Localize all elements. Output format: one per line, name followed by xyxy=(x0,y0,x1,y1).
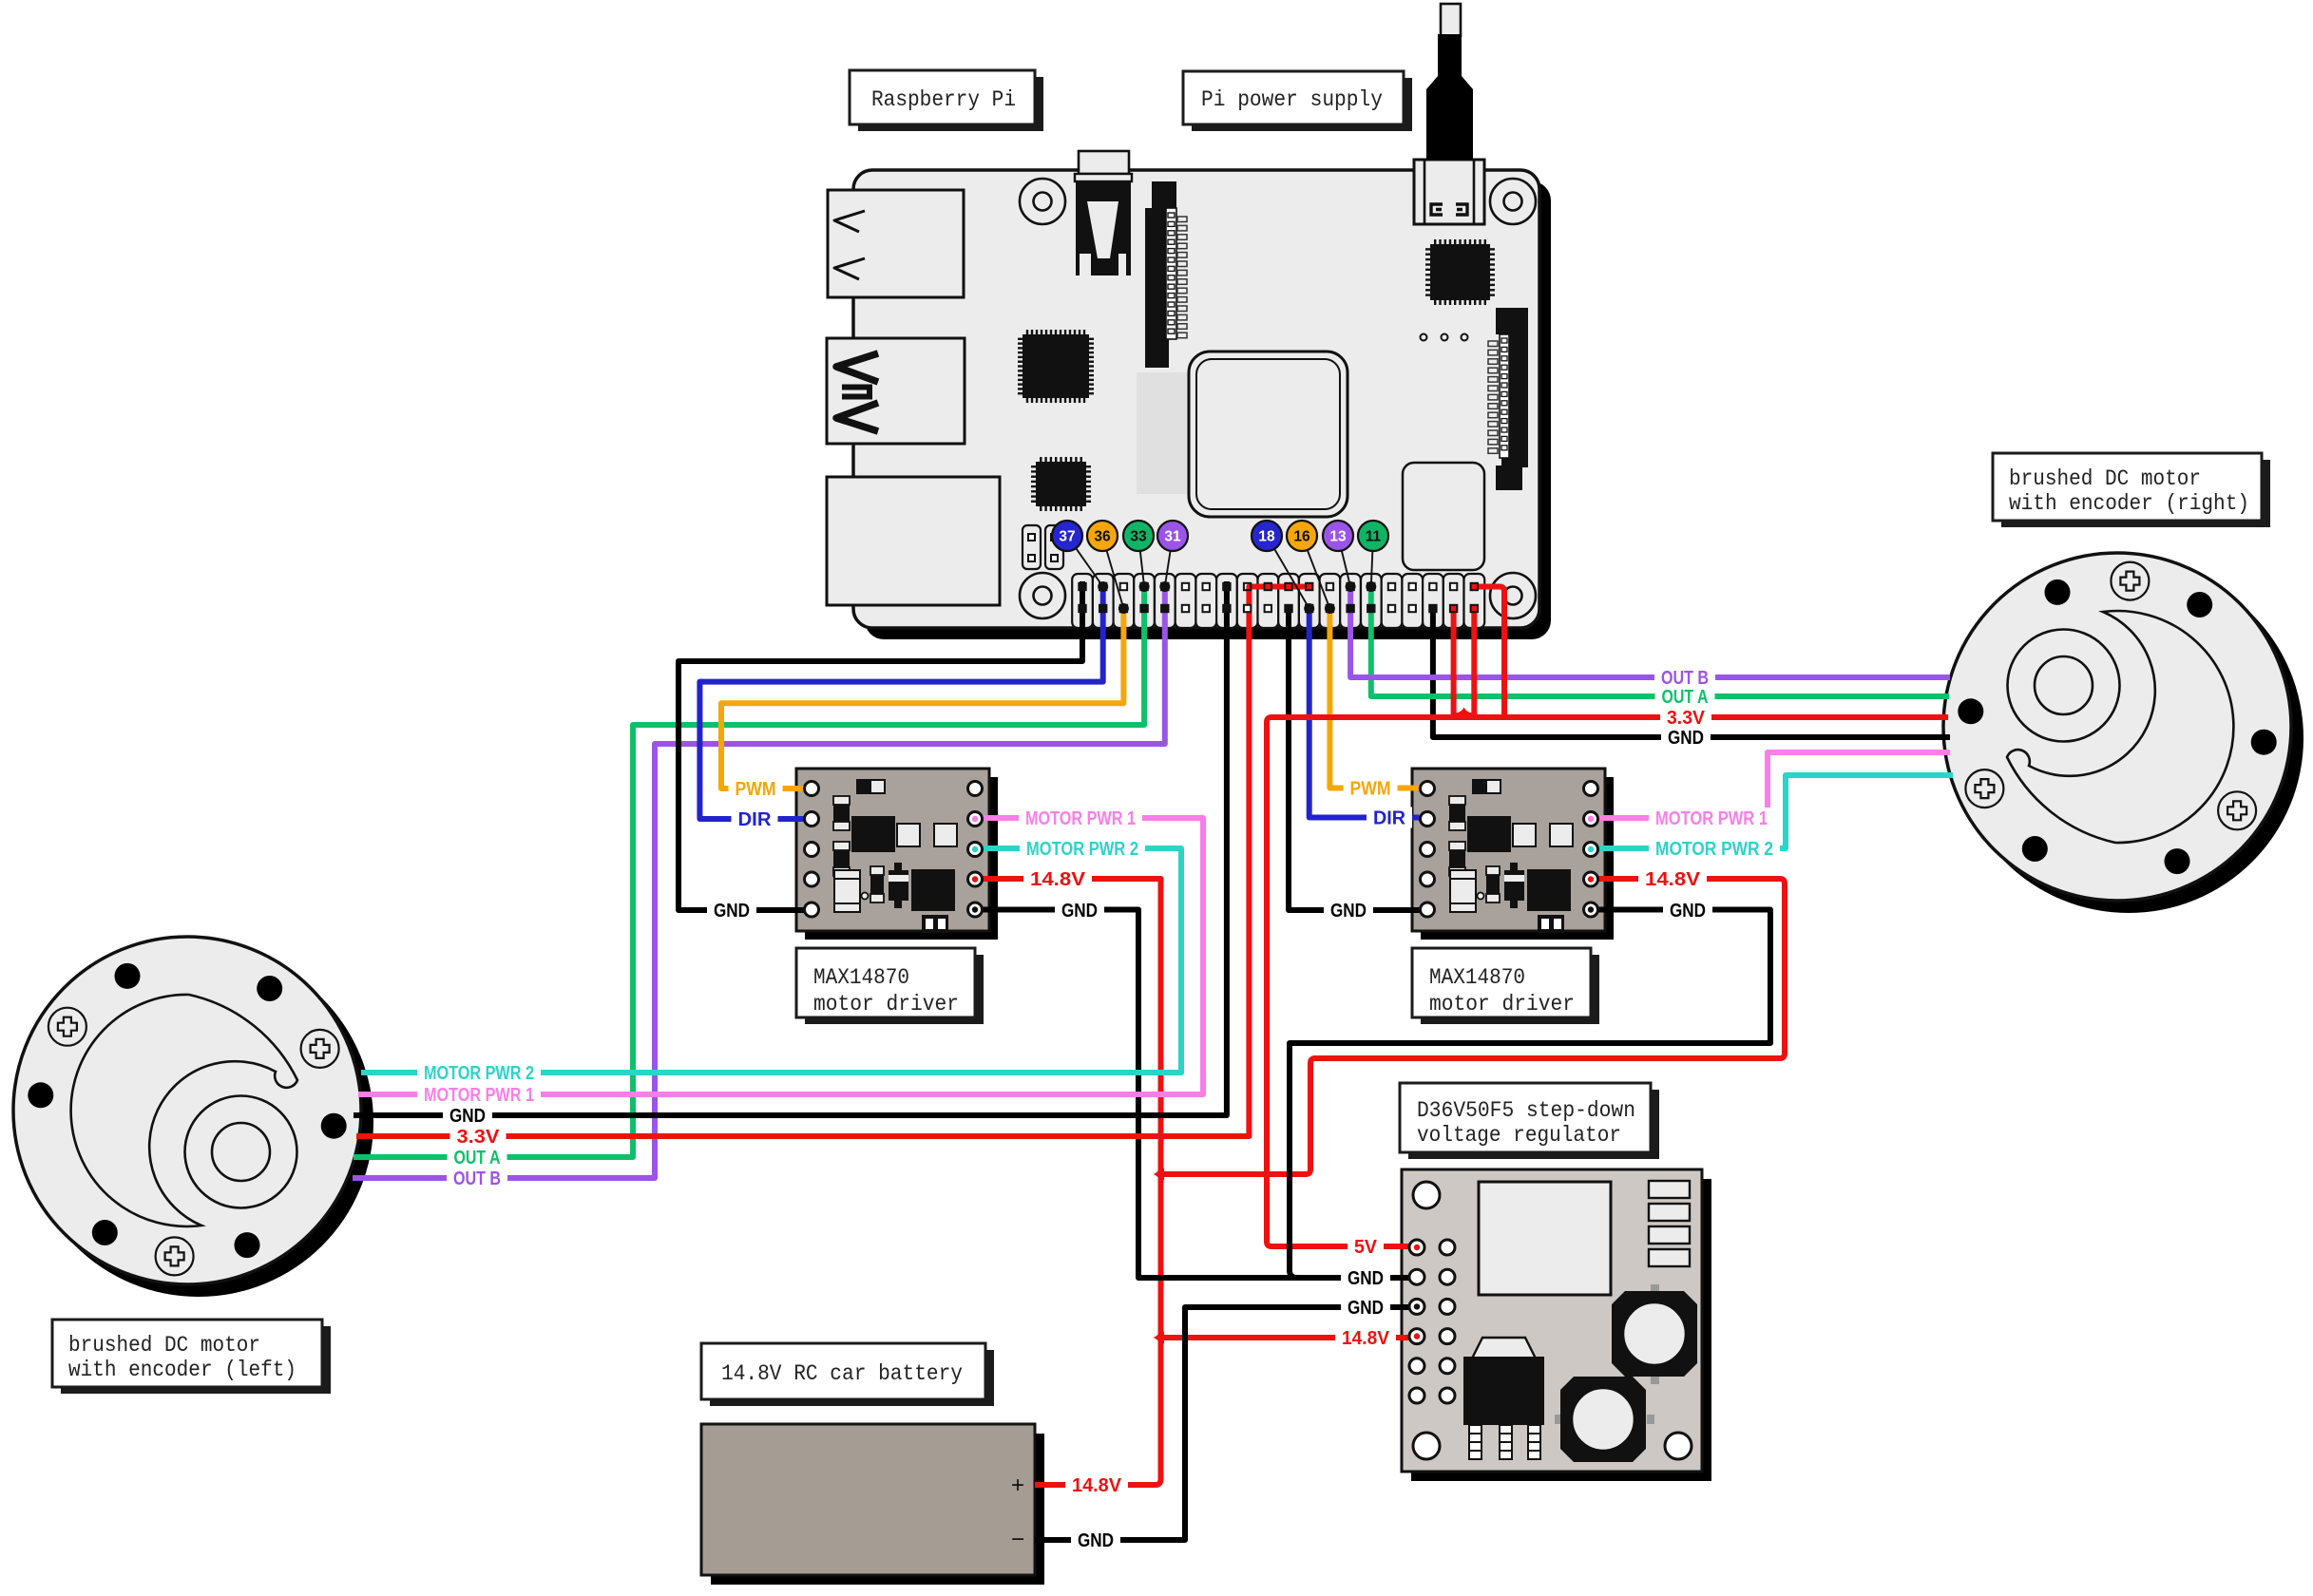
svg-text:3.3V: 3.3V xyxy=(457,1127,501,1148)
svg-text:36: 36 xyxy=(1094,529,1111,545)
svg-text:GND: GND xyxy=(714,901,750,921)
svg-text:PWM: PWM xyxy=(1350,779,1391,800)
svg-text:GND: GND xyxy=(449,1106,486,1127)
svg-text:GND: GND xyxy=(1348,1298,1384,1319)
svg-text:18: 18 xyxy=(1258,529,1275,545)
svg-text:14.8V: 14.8V xyxy=(1342,1328,1390,1349)
svg-text:DIR: DIR xyxy=(1373,808,1406,829)
svg-text:13: 13 xyxy=(1329,529,1347,545)
svg-text:11: 11 xyxy=(1366,529,1382,545)
svg-text:with encoder (right): with encoder (right) xyxy=(2009,491,2249,516)
svg-text:MOTOR PWR 2: MOTOR PWR 2 xyxy=(424,1063,534,1084)
svg-text:brushed DC motor: brushed DC motor xyxy=(68,1333,260,1358)
svg-text:14.8V: 14.8V xyxy=(1645,869,1701,890)
svg-text:33: 33 xyxy=(1130,529,1147,545)
svg-text:31: 31 xyxy=(1164,529,1181,545)
svg-text:Raspberry Pi: Raspberry Pi xyxy=(871,87,1016,112)
svg-text:GND: GND xyxy=(1078,1530,1114,1551)
svg-text:MAX14870: MAX14870 xyxy=(813,965,909,990)
svg-text:14.8V RC car battery: 14.8V RC car battery xyxy=(721,1361,963,1386)
svg-text:DIR: DIR xyxy=(738,809,773,830)
svg-text:OUT B: OUT B xyxy=(1661,668,1709,689)
svg-text:MAX14870: MAX14870 xyxy=(1429,965,1525,990)
svg-text:brushed DC motor: brushed DC motor xyxy=(2009,466,2201,491)
svg-text:GND: GND xyxy=(1061,901,1098,921)
svg-text:OUT A: OUT A xyxy=(1662,687,1709,708)
svg-text:MOTOR PWR 2: MOTOR PWR 2 xyxy=(1655,839,1773,860)
svg-text:GND: GND xyxy=(1348,1268,1384,1289)
svg-text:MOTOR PWR 2: MOTOR PWR 2 xyxy=(1026,839,1138,860)
svg-text:MOTOR PWR 1: MOTOR PWR 1 xyxy=(424,1085,534,1106)
svg-text:D36V50F5 step-down: D36V50F5 step-down xyxy=(1417,1098,1635,1123)
svg-text:14.8V: 14.8V xyxy=(1072,1475,1122,1496)
svg-text:Pi power supply: Pi power supply xyxy=(1201,87,1383,112)
svg-text:motor driver: motor driver xyxy=(813,992,959,1016)
svg-text:GND: GND xyxy=(1670,901,1706,921)
svg-text:MOTOR PWR 1: MOTOR PWR 1 xyxy=(1655,808,1768,829)
svg-text:PWM: PWM xyxy=(736,779,776,800)
svg-text:MOTOR PWR 1: MOTOR PWR 1 xyxy=(1025,808,1136,829)
svg-text:5V: 5V xyxy=(1354,1237,1378,1258)
svg-text:voltage regulator: voltage regulator xyxy=(1417,1123,1621,1148)
svg-text:with encoder (left): with encoder (left) xyxy=(68,1358,296,1382)
svg-text:14.8V: 14.8V xyxy=(1030,869,1086,890)
svg-text:37: 37 xyxy=(1059,529,1075,545)
svg-text:+: + xyxy=(1011,1472,1024,1498)
svg-text:OUT A: OUT A xyxy=(454,1148,501,1168)
svg-text:−: − xyxy=(1011,1527,1024,1552)
svg-text:3.3V: 3.3V xyxy=(1667,708,1706,729)
svg-text:GND: GND xyxy=(1668,728,1704,749)
svg-text:OUT B: OUT B xyxy=(453,1168,501,1189)
svg-text:16: 16 xyxy=(1293,529,1310,545)
svg-text:GND: GND xyxy=(1330,901,1367,921)
svg-text:motor driver: motor driver xyxy=(1429,992,1575,1016)
